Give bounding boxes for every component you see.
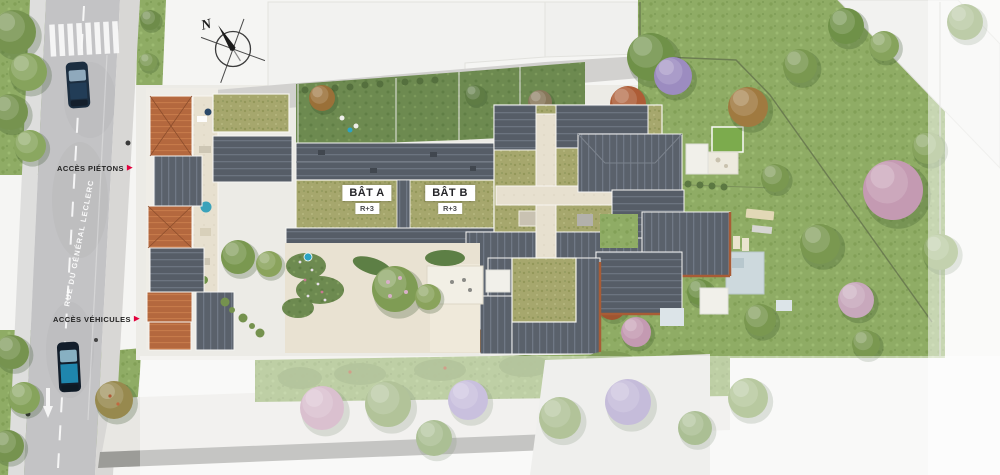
pedestrian-access-arrow-icon: ▶ (127, 165, 133, 172)
building-b-label: BÂT B R+3 (425, 185, 475, 214)
pergola (712, 127, 743, 152)
building-b-floors: R+3 (438, 203, 462, 214)
building-a-label: BÂT A R+3 (342, 185, 391, 214)
vehicle-access-text: ACCÈS VÉHICULES (53, 315, 131, 324)
building-b-name: BÂT B (425, 185, 475, 201)
terracotta-roofs (147, 96, 192, 350)
terrace-blue (726, 252, 764, 294)
pedestrian-access-label: ACCÈS PIÉTONS ▶ (57, 164, 133, 173)
green-roof-nw (213, 94, 289, 132)
vehicle-access-label: ACCÈS VÉHICULES ▶ (53, 315, 140, 324)
vehicle-access-arrow-icon: ▶ (134, 316, 140, 323)
building-a-name: BÂT A (342, 185, 391, 201)
building-a-floors: R+3 (355, 203, 379, 214)
pedestrian-access-text: ACCÈS PIÉTONS (57, 164, 124, 173)
site-plan: N ACCÈS PIÉTONS ▶ ACCÈS VÉHICULES ▶ RUE … (0, 0, 1000, 475)
site-plan-rendering: N (0, 0, 1000, 475)
car-bottom (57, 341, 82, 392)
car-top (65, 61, 90, 108)
